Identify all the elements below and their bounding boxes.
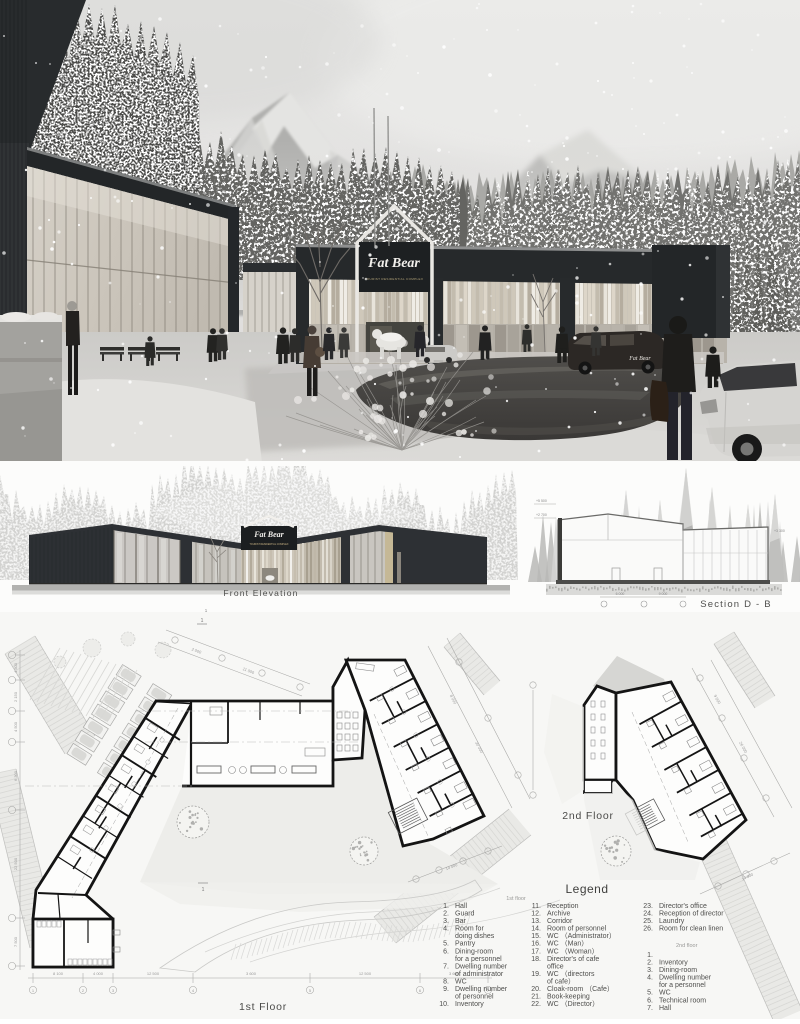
svg-text:doing dishes: doing dishes — [455, 933, 495, 940]
svg-text:14.: 14. — [531, 926, 541, 933]
svg-text:3 600: 3 600 — [246, 971, 257, 976]
svg-text:Hall: Hall — [455, 903, 468, 910]
svg-text:22 500: 22 500 — [13, 857, 18, 870]
svg-text:WC: WC — [659, 990, 671, 997]
svg-text:Bar: Bar — [455, 918, 467, 925]
svg-text:10.: 10. — [439, 1001, 449, 1008]
svg-text:Book-keeping: Book-keeping — [547, 994, 590, 1001]
svg-text:Hall: Hall — [659, 1005, 672, 1012]
svg-text:Room of personnel: Room of personnel — [547, 926, 607, 933]
svg-text:7.: 7. — [647, 1005, 653, 1012]
svg-text:1.: 1. — [443, 903, 449, 910]
svg-text:WC （Administrator）: WC （Administrator） — [547, 932, 616, 940]
svg-text:for a personnel: for a personnel — [455, 956, 502, 963]
svg-text:for a personnel: for a personnel — [659, 982, 706, 989]
svg-text:WC （Woman）: WC （Woman） — [547, 947, 599, 955]
svg-text:24.: 24. — [643, 911, 653, 918]
svg-text:19.: 19. — [531, 971, 541, 978]
svg-text:15.: 15. — [531, 933, 541, 940]
svg-text:12 500: 12 500 — [359, 971, 372, 976]
svg-text:Pantry: Pantry — [455, 941, 476, 948]
svg-text:20.: 20. — [531, 986, 541, 993]
svg-text:1: 1 — [202, 887, 205, 893]
svg-text:Inventory: Inventory — [659, 960, 688, 967]
svg-text:Dwelling number: Dwelling number — [659, 975, 712, 982]
svg-text:Inventory: Inventory — [455, 1001, 484, 1008]
svg-text:7.: 7. — [443, 963, 449, 970]
svg-text:Laundry: Laundry — [659, 918, 685, 925]
svg-text:5.: 5. — [647, 990, 653, 997]
svg-text:7 500: 7 500 — [13, 936, 18, 947]
svg-text:26.: 26. — [643, 926, 653, 933]
svg-text:Reception of director: Reception of director — [659, 911, 724, 918]
svg-text:Fat Bear: Fat Bear — [628, 356, 651, 362]
svg-text:+2 700: +2 700 — [536, 513, 547, 517]
svg-text:Room for: Room for — [455, 926, 484, 933]
svg-text:WC （directors: WC （directors — [547, 970, 595, 978]
svg-text:2nd Floor: 2nd Floor — [562, 810, 614, 822]
svg-text:Fat Bear: Fat Bear — [367, 256, 420, 271]
svg-text:3.: 3. — [443, 918, 449, 925]
svg-text:22.: 22. — [531, 1001, 541, 1008]
svg-text:Legend: Legend — [565, 882, 608, 896]
svg-text:2 150: 2 150 — [13, 691, 18, 702]
svg-text:Archive: Archive — [547, 911, 570, 918]
svg-text:4.: 4. — [443, 926, 449, 933]
svg-text:8 100: 8 100 — [53, 971, 64, 976]
svg-text:17.: 17. — [531, 948, 541, 955]
svg-text:3.: 3. — [647, 967, 653, 974]
svg-text:Technical room: Technical room — [659, 997, 706, 1004]
svg-text:9.: 9. — [443, 986, 449, 993]
svg-text:Front Elevation: Front Elevation — [223, 588, 298, 598]
svg-text:6 300: 6 300 — [13, 770, 18, 781]
svg-text:TOURIST RESIDENTIAL COMPLEX: TOURIST RESIDENTIAL COMPLEX — [365, 277, 424, 281]
svg-text:2.: 2. — [443, 911, 449, 918]
svg-text:9 000: 9 000 — [659, 592, 668, 596]
svg-text:WC （Man）: WC （Man） — [547, 940, 588, 948]
svg-text:1st floor: 1st floor — [506, 896, 526, 902]
svg-text:office: office — [547, 963, 564, 970]
svg-text:1.: 1. — [647, 952, 653, 959]
svg-text:12 500: 12 500 — [147, 971, 160, 976]
svg-text:25.: 25. — [643, 918, 653, 925]
svg-text:+3 300: +3 300 — [774, 529, 785, 533]
svg-text:Director's of cafe: Director's of cafe — [547, 956, 599, 963]
svg-text:of personnel: of personnel — [455, 994, 494, 1001]
svg-text:4 000: 4 000 — [93, 971, 104, 976]
svg-text:of administrator: of administrator — [455, 971, 504, 978]
svg-text:Reception: Reception — [547, 903, 579, 910]
svg-text:WC: WC — [455, 979, 467, 986]
svg-text:Dining-room: Dining-room — [659, 967, 697, 974]
svg-text:4 500: 4 500 — [13, 662, 18, 673]
svg-text:21.: 21. — [531, 994, 541, 1001]
svg-text:Fat Bear: Fat Bear — [253, 530, 284, 539]
svg-text:6 000: 6 000 — [616, 592, 625, 596]
svg-text:23.: 23. — [643, 903, 653, 910]
svg-text:11.: 11. — [532, 903, 541, 910]
svg-text:13.: 13. — [531, 918, 541, 925]
svg-text:16.: 16. — [531, 941, 541, 948]
svg-text:6.: 6. — [647, 997, 653, 1004]
svg-text:TOURIST RESIDENTIAL COMPLEX: TOURIST RESIDENTIAL COMPLEX — [249, 543, 288, 546]
svg-text:18.: 18. — [531, 956, 541, 963]
svg-text:Dwelling number: Dwelling number — [455, 986, 508, 993]
svg-text:5.: 5. — [443, 941, 449, 948]
svg-text:Corridor: Corridor — [547, 918, 573, 925]
svg-text:1st Floor: 1st Floor — [239, 1001, 287, 1013]
svg-text:12.: 12. — [531, 911, 541, 918]
svg-text:4 500: 4 500 — [13, 721, 18, 732]
svg-text:8.: 8. — [443, 979, 449, 986]
svg-text:1: 1 — [201, 618, 204, 624]
svg-text:Director's office: Director's office — [659, 903, 707, 910]
svg-text:2nd floor: 2nd floor — [676, 943, 698, 949]
svg-text:4.: 4. — [647, 975, 653, 982]
svg-text:Dining-room: Dining-room — [455, 948, 493, 955]
svg-text:of cafe）: of cafe） — [547, 978, 575, 986]
svg-text:WC （Director）: WC （Director） — [547, 1000, 599, 1008]
svg-text:Room for clean linen: Room for clean linen — [659, 926, 723, 933]
svg-text:+5 500: +5 500 — [536, 499, 547, 503]
svg-text:Dwelling number: Dwelling number — [455, 963, 508, 970]
svg-text:Section D - B: Section D - B — [700, 599, 772, 610]
svg-text:Cloak-room （Cafe）: Cloak-room （Cafe） — [547, 985, 614, 993]
svg-text:2.: 2. — [647, 960, 653, 967]
svg-text:6.: 6. — [443, 948, 449, 955]
svg-text:Guard: Guard — [455, 911, 475, 918]
